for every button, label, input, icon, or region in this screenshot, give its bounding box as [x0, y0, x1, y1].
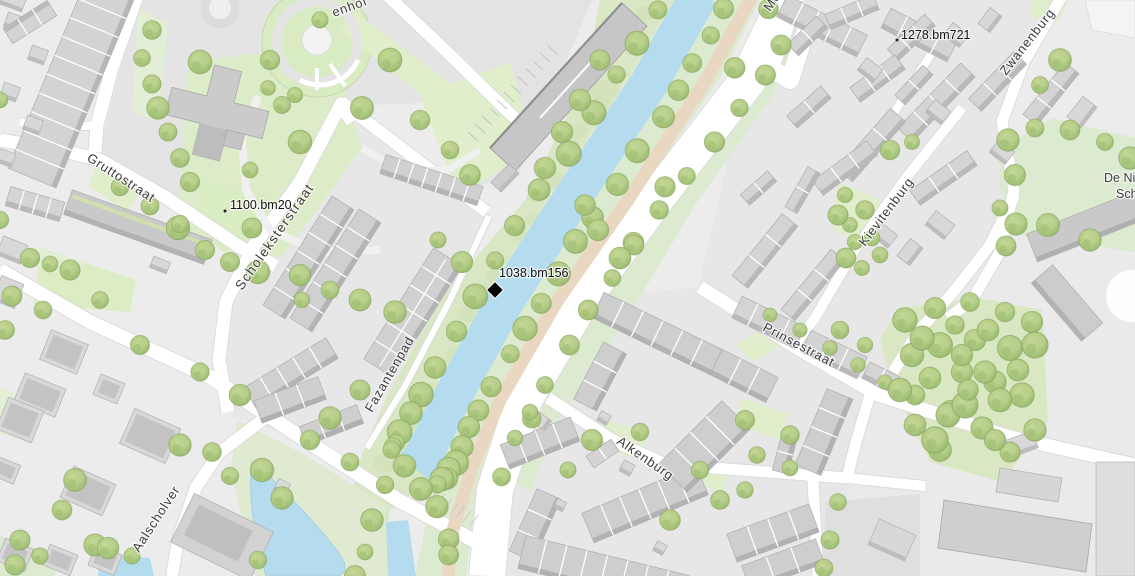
- svg-text:1278.bm721: 1278.bm721: [901, 28, 971, 42]
- svg-text:De Ni: De Ni: [1104, 171, 1135, 185]
- svg-text:1100.bm20: 1100.bm20: [230, 198, 292, 212]
- svg-text:Sch: Sch: [1116, 187, 1135, 201]
- svg-text:1038.bm156: 1038.bm156: [499, 266, 569, 280]
